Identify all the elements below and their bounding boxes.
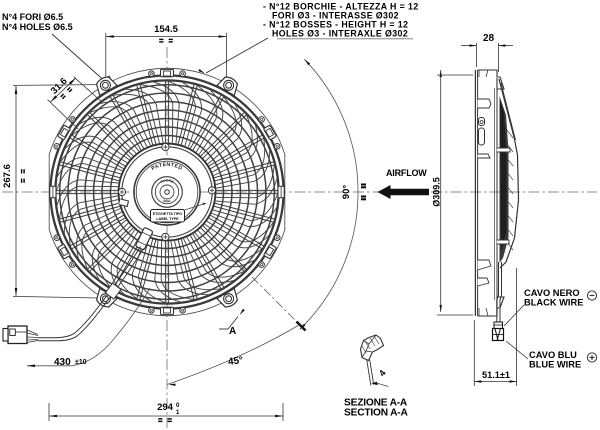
svg-text:N°4 FORI Ø6.5: N°4 FORI Ø6.5: [2, 12, 63, 22]
svg-text:CAVO BLU: CAVO BLU: [529, 350, 577, 360]
svg-text:51.1±1: 51.1±1: [482, 370, 510, 380]
svg-text:90°: 90°: [341, 185, 352, 200]
svg-text:BLACK WIRE: BLACK WIRE: [524, 298, 583, 308]
svg-text:LABEL TYPE: LABEL TYPE: [156, 217, 179, 221]
svg-text:BLUE WIRE: BLUE WIRE: [529, 360, 581, 370]
svg-text:267.6: 267.6: [2, 164, 13, 188]
svg-text:CAVO NERO: CAVO NERO: [524, 288, 580, 298]
svg-text:Ø309.5: Ø309.5: [432, 177, 442, 207]
svg-text:294: 294: [157, 402, 174, 413]
svg-text:430: 430: [54, 357, 71, 368]
svg-text:HOLES Ø3 - INTERAXLE Ø302: HOLES Ø3 - INTERAXLE Ø302: [272, 29, 408, 39]
svg-text:±10: ±10: [75, 359, 87, 366]
svg-text:28: 28: [483, 33, 495, 44]
svg-text:N°4 HOLES Ø6.5: N°4 HOLES Ø6.5: [2, 22, 73, 32]
svg-text:AIRFLOW: AIRFLOW: [386, 168, 427, 178]
svg-text:154.5: 154.5: [154, 24, 178, 35]
svg-text:SECTION A-A: SECTION A-A: [344, 408, 408, 419]
svg-text:A: A: [229, 326, 236, 337]
svg-text:45°: 45°: [227, 355, 244, 368]
svg-text:ETICHETTA TIPO: ETICHETTA TIPO: [153, 212, 182, 216]
